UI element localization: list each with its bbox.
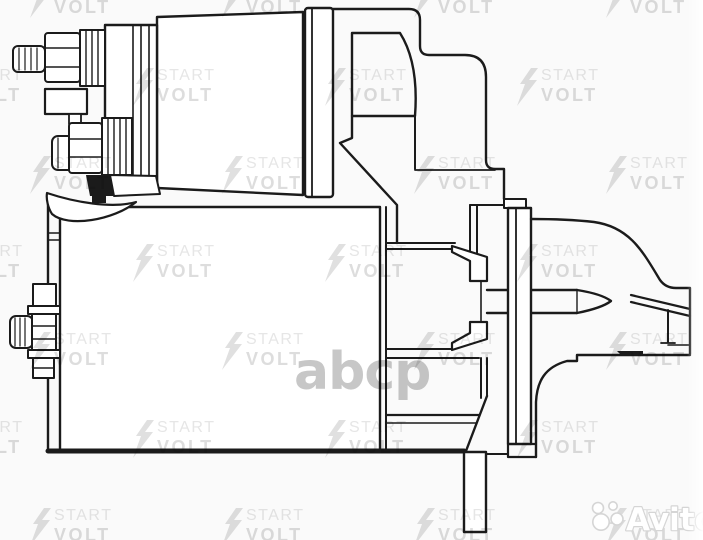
mounting-flange [504,199,690,457]
solenoid-mount-wedge [86,175,160,203]
starter-motor-drawing [0,0,703,540]
through-bolt-stud [464,452,486,532]
motor-body [47,193,386,451]
flange-bore-chamfer [631,295,690,316]
product-photo-starter-motor: STARTVOLTSTARTVOLTSTARTVOLTSTARTVOLTSTAR… [0,0,703,540]
mounting-bolt [10,284,60,378]
terminal-stud-upper [13,30,105,86]
solenoid [105,8,333,197]
